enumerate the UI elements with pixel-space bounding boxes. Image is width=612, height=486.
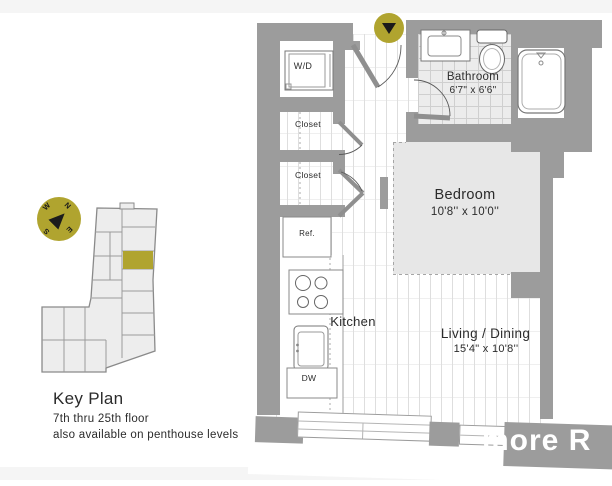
wall bbox=[511, 124, 540, 150]
key-plan-availability: also available on penthouse levels bbox=[53, 429, 313, 442]
compass-rose: N E S W bbox=[37, 197, 81, 241]
bathroom-dimensions: 6'7" x 6'6" bbox=[428, 85, 518, 96]
bedroom-dimensions: 10'8'' x 10'0'' bbox=[405, 206, 525, 219]
closet-upper-label: Closet bbox=[283, 120, 333, 129]
bathroom-label: Bathroom bbox=[428, 71, 518, 84]
living-dining-label: Living / Dining bbox=[423, 327, 548, 342]
wall bbox=[564, 48, 592, 152]
compass-s-label: S bbox=[42, 227, 52, 237]
living-dining-dimensions: 15'4" x 10'8'' bbox=[426, 343, 546, 355]
sill-line bbox=[298, 429, 430, 434]
kitchen-counter bbox=[280, 255, 343, 425]
top-page-strip bbox=[0, 0, 612, 13]
wall bbox=[279, 150, 345, 162]
entry-marker bbox=[374, 13, 404, 43]
key-plan-title: Key Plan bbox=[53, 390, 213, 409]
wall bbox=[257, 23, 280, 415]
refrigerator-label: Ref. bbox=[282, 230, 332, 239]
closet-lower-label: Closet bbox=[283, 171, 333, 180]
wall bbox=[406, 20, 418, 78]
key-plan-floors: 7th thru 25th floor bbox=[53, 413, 273, 426]
wall bbox=[333, 112, 345, 124]
bedroom-label: Bedroom bbox=[405, 188, 525, 204]
compass-n-label: N bbox=[63, 200, 73, 210]
wall bbox=[333, 162, 345, 174]
compass-w-label: W bbox=[41, 201, 52, 212]
key-plan-bump bbox=[120, 203, 134, 209]
tub-alcove-floor bbox=[515, 46, 565, 118]
wall bbox=[540, 150, 553, 274]
key-plan-highlighted-unit bbox=[123, 251, 153, 269]
wall bbox=[511, 272, 540, 298]
wall bbox=[279, 205, 345, 217]
wall bbox=[380, 177, 388, 209]
wall bbox=[406, 124, 511, 142]
window-sill bbox=[297, 412, 432, 442]
sill-line bbox=[299, 421, 431, 426]
entry-arrow-icon bbox=[382, 23, 396, 34]
laundry-label: W/D bbox=[278, 62, 328, 72]
dishwasher-label: DW bbox=[284, 374, 334, 383]
wall bbox=[517, 20, 602, 48]
wall bbox=[418, 20, 517, 34]
wall bbox=[333, 41, 345, 102]
floor-plan-page: { "key_plan": { "title": "Key Plan", "fl… bbox=[0, 0, 612, 480]
wall bbox=[429, 422, 460, 447]
kitchen-label: Kitchen bbox=[318, 315, 388, 329]
watermark-text: more R bbox=[482, 424, 591, 458]
compass-e-label: E bbox=[65, 225, 75, 235]
